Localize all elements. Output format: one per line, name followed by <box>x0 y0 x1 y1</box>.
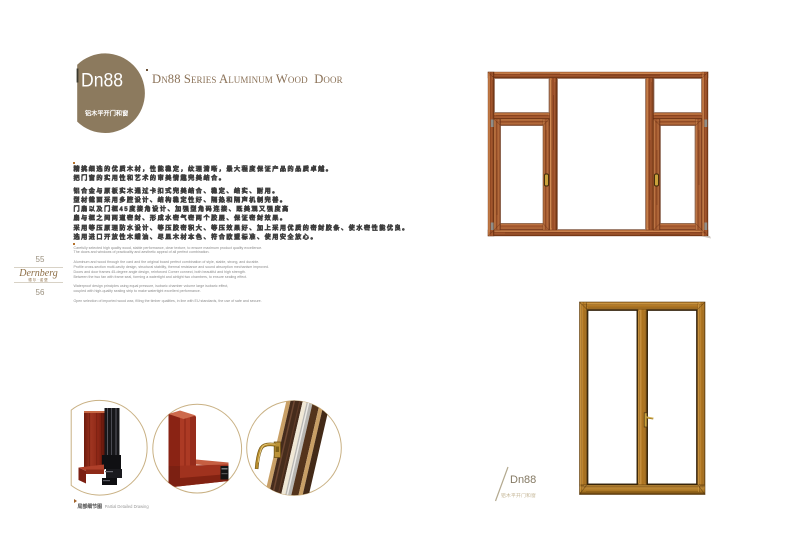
svg-text:铝木平开门和窗: 铝木平开门和窗 <box>85 110 128 118</box>
svg-text:Dn88: Dn88 <box>81 71 123 92</box>
